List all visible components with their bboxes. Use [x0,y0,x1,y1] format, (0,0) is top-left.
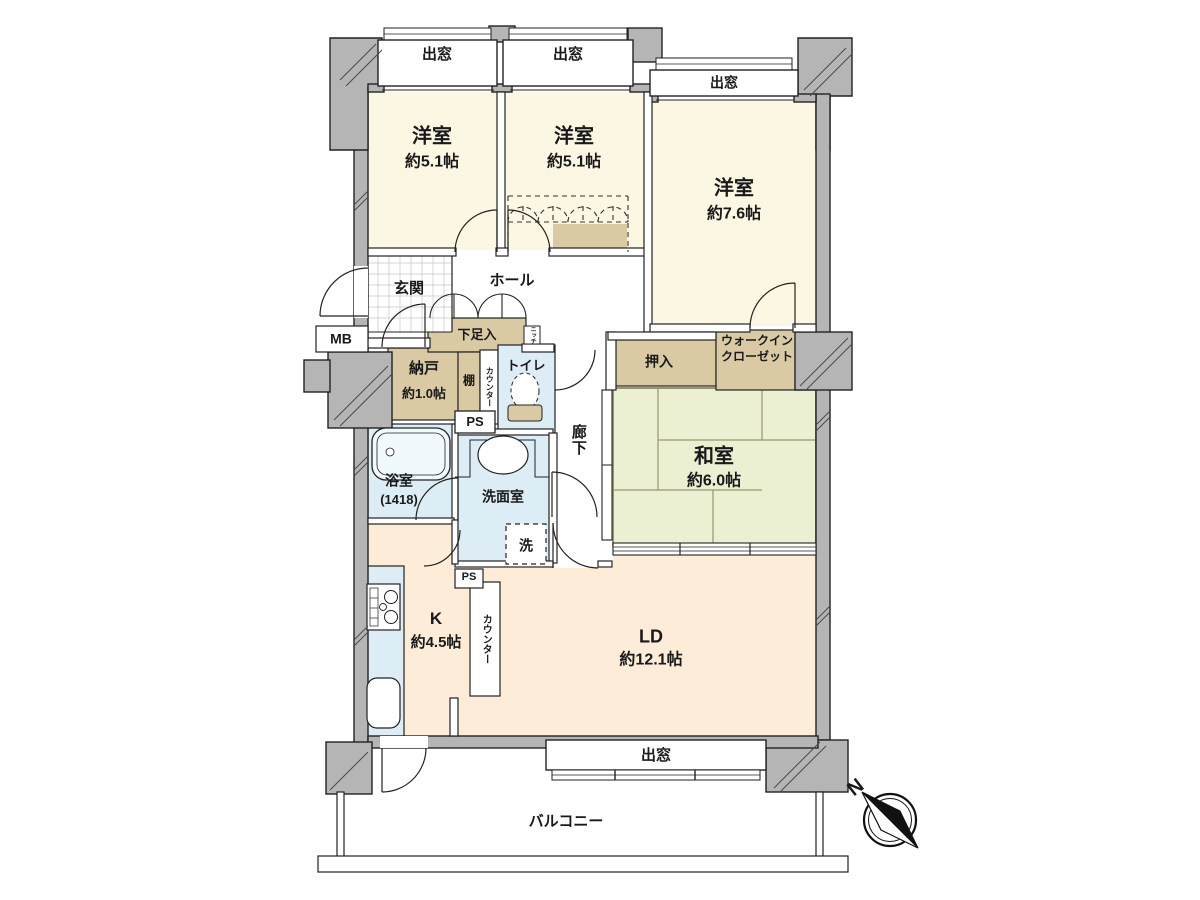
meter-box-label: MB [330,332,352,347]
bay-window-label-3: 出窓 [710,76,738,91]
kitchen-size: 約4.5帖 [411,635,462,651]
wic-label-line2: クローゼット [721,351,793,364]
bedroom2-name: 洋室 [554,127,594,148]
toilet-label: トイレ [506,359,545,373]
right-wall [816,94,830,740]
washroom-label: 洗面室 [482,490,524,505]
bay-window-label-4: 出窓 [641,748,671,764]
bedroom3-size: 約7.6帖 [707,207,761,224]
counter-a-label: カウンター [485,367,493,407]
counter-b-label: カウンター [480,614,491,664]
balcony-rail-right [816,792,823,858]
kitchen-sink [367,678,400,728]
bay-window-label-1: 出窓 [422,47,452,63]
storage-room-name: 納戸 [409,361,439,377]
pillar-mid-right [795,332,852,390]
balcony-door [382,748,426,792]
kitchen-name: K [430,610,442,628]
bathroom-label: 浴室 [385,474,413,489]
shoe-cabinet-label: 下足入 [457,328,496,342]
corridor-label: 廊下 [570,424,586,456]
pipe-space-1-label: PS [466,415,483,429]
bedroom1-size: 約5.1帖 [405,155,459,172]
bathroom-size-label: (1418) [380,493,418,507]
pillar-meter-tab [304,360,330,392]
niche-label: ニッチ [529,326,535,344]
living-dining-name: LD [639,628,663,647]
hall-label: ホール [489,273,534,289]
living-dining-size: 約12.1帖 [619,653,682,670]
storage-room-floor [388,348,460,420]
bay-window-label-2: 出窓 [553,47,583,63]
floor-plan: 出窓 出窓 出窓 出窓 洋室 約5.1帖 洋室 約5.1帖 洋室 約7.6帖 和… [0,0,1200,900]
balcony-label: バルコニー [529,814,604,830]
bedroom1-name: 洋室 [412,127,452,148]
pillar-bottom-left [326,742,372,794]
bedroom3-name: 洋室 [714,179,754,200]
floor-plan-drawing [0,0,1200,900]
pipe-space-2-label: PS [462,572,477,584]
bedroom2-closet-base [553,224,627,251]
japanese-room-name: 和室 [694,447,734,468]
storage-room-size: 約1.0帖 [402,387,446,401]
balcony-rail-left [337,792,344,858]
bedroom2-size: 約5.1帖 [547,155,601,172]
washing-machine-label: 洗 [519,539,533,554]
stove [367,584,400,630]
balcony [318,792,848,872]
japanese-room-size: 約6.0帖 [687,474,741,491]
entrance-label: 玄関 [394,281,424,297]
shelf-label: 棚 [463,375,475,388]
compass-icon [862,792,918,848]
oshiire-label: 押入 [645,355,673,370]
balcony-rail-bottom [318,856,848,872]
wic-label-line1: ウォークイン [721,335,793,348]
